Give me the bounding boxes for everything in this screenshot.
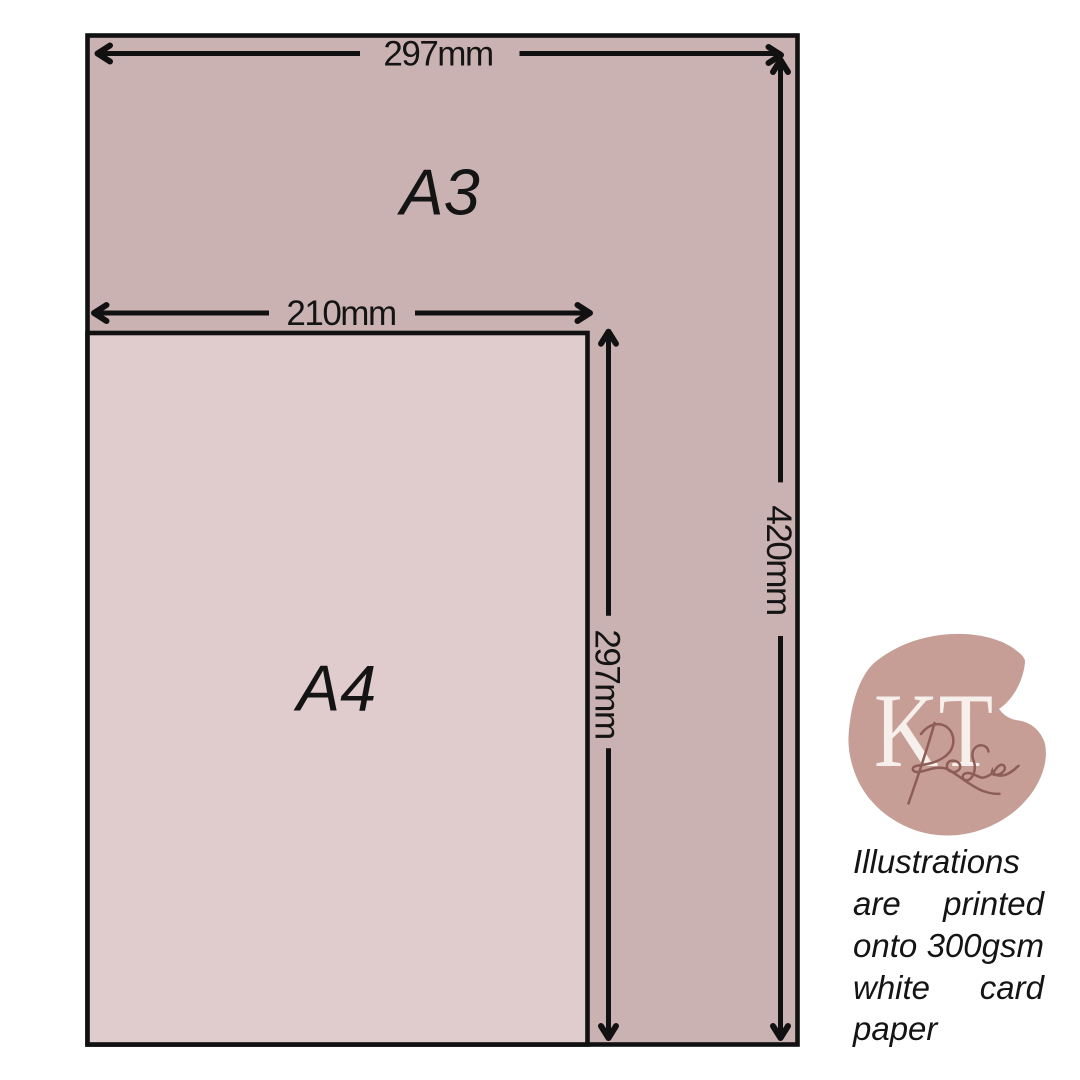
svg-text:210mm: 210mm	[286, 294, 395, 333]
svg-text:297mm: 297mm	[588, 629, 627, 738]
svg-text:A4: A4	[293, 652, 377, 725]
svg-text:A3: A3	[396, 156, 480, 229]
svg-text:420mm: 420mm	[759, 505, 798, 614]
svg-text:297mm: 297mm	[383, 35, 492, 74]
